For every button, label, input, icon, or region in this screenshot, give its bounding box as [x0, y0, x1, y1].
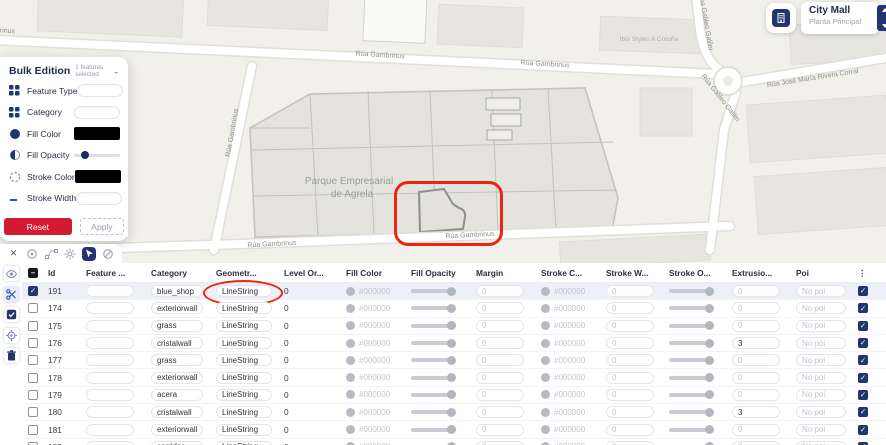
venue-title: City Mall: [809, 5, 871, 17]
row-checkbox[interactable]: [28, 390, 38, 400]
cell-input[interactable]: LineString: [216, 441, 272, 445]
cell-input[interactable]: [86, 389, 134, 401]
opacity-slider[interactable]: [411, 341, 455, 345]
cell-input[interactable]: 0: [476, 424, 524, 436]
slider-knob[interactable]: [705, 304, 714, 313]
cell-input[interactable]: 0: [732, 441, 780, 445]
level-order-value: 0: [284, 286, 289, 296]
slash-tool-icon[interactable]: [101, 247, 115, 261]
opacity-slider[interactable]: [411, 393, 455, 397]
slider-knob[interactable]: [447, 373, 456, 382]
cell-input[interactable]: 0: [476, 406, 524, 418]
cell-input[interactable]: [86, 354, 134, 366]
opacity-slider[interactable]: [669, 393, 713, 397]
table-toolbar: ✕: [0, 244, 122, 263]
row-checkbox[interactable]: ✓: [858, 303, 868, 313]
color-dot-icon[interactable]: [346, 373, 355, 382]
level-order-value: 0: [284, 390, 289, 400]
row-id: 176: [48, 338, 62, 348]
opacity-slider[interactable]: [411, 428, 455, 432]
settings-icon[interactable]: [63, 247, 77, 261]
color-hex-value: #000000: [554, 304, 585, 313]
color-dot-icon[interactable]: [346, 287, 355, 296]
panel-field-stroke-opacity: Stroke Opacity: [0, 209, 128, 213]
panel-field-label: Stroke Color: [27, 172, 75, 182]
cell-input[interactable]: No poi: [796, 372, 846, 384]
color-hex-value: #000000: [554, 373, 585, 382]
line-icon: [8, 192, 21, 205]
building-icon: [772, 9, 790, 27]
filled-circle-icon: [8, 127, 21, 140]
app-window: Rúa GambrinusRúa GambrinusRúa GambrinusR…: [0, 0, 886, 445]
row-checkbox[interactable]: [28, 407, 38, 417]
level-order-value: 0: [284, 373, 289, 383]
color-hex-value: #000000: [554, 408, 585, 417]
cell-input[interactable]: No poi: [796, 424, 846, 436]
cell-input[interactable]: [86, 337, 134, 349]
grid-icon: [8, 84, 21, 97]
row-id: 179: [48, 390, 62, 400]
slider-knob[interactable]: [705, 390, 714, 399]
table-row[interactable]: 179aceraLineString0#0000000#00000000No p…: [22, 387, 886, 404]
cell-input[interactable]: 0: [732, 389, 780, 401]
table-side-rail: [0, 263, 22, 445]
color-hex-value: #000000: [554, 356, 585, 365]
row-id: 174: [48, 303, 62, 313]
opacity-slider[interactable]: [411, 376, 455, 380]
row-checkbox[interactable]: [28, 321, 38, 331]
select-all-checkbox[interactable]: –: [28, 268, 38, 278]
table-row[interactable]: ✓191blue_shopLineString0#0000000#0000000…: [22, 283, 886, 300]
cell-input[interactable]: No poi: [796, 337, 846, 349]
cell-input[interactable]: 0: [476, 389, 524, 401]
cell-input[interactable]: 0: [732, 285, 780, 297]
cell-input[interactable]: 0: [606, 406, 654, 418]
level-order-value: 0: [284, 338, 289, 348]
cell-input[interactable]: corridor: [151, 441, 203, 445]
chevron-up-icon: [882, 8, 886, 12]
row-id: 175: [48, 321, 62, 331]
color-hex-value: #000000: [359, 304, 390, 313]
cell-input[interactable]: cristalwall: [151, 337, 203, 349]
color-dot-icon[interactable]: [346, 339, 355, 348]
row-checkbox[interactable]: [28, 338, 38, 348]
row-checkbox[interactable]: [28, 355, 38, 365]
slider-knob[interactable]: [447, 390, 456, 399]
color-hex-value: #000000: [359, 425, 390, 434]
table-row[interactable]: 178exteriorwallLineString0#0000000#00000…: [22, 369, 886, 386]
cell-input[interactable]: 0: [476, 354, 524, 366]
table-row[interactable]: 175grassLineString0#0000000#00000000No p…: [22, 318, 886, 335]
cell-input[interactable]: 0: [476, 320, 524, 332]
color-dot-icon[interactable]: [346, 356, 355, 365]
table-row[interactable]: 174exteriorwallLineString0#0000000#00000…: [22, 300, 886, 317]
cell-input[interactable]: grass: [151, 320, 203, 332]
row-checkbox[interactable]: [28, 373, 38, 383]
target-tool-icon[interactable]: [25, 247, 39, 261]
slider-knob[interactable]: [705, 321, 714, 330]
row-checkbox[interactable]: ✓: [28, 286, 38, 296]
color-hex-value: #000000: [359, 339, 390, 348]
table-row[interactable]: 181exteriorwallLineString0#0000000#00000…: [22, 421, 886, 438]
color-dot-icon[interactable]: [346, 425, 355, 434]
cell-input[interactable]: LineString: [216, 424, 272, 436]
cell-input[interactable]: 3: [732, 337, 780, 349]
table-row[interactable]: 177grassLineString0#0000000#00000000No p…: [22, 352, 886, 369]
color-dot-icon[interactable]: [541, 287, 550, 296]
cell-input[interactable]: 0: [606, 337, 654, 349]
panel-field-label: Fill Opacity: [27, 150, 74, 160]
bulk-edition-panel: Bulk Edition 1 features selected ⌄ Featu…: [0, 57, 128, 241]
color-hex-value: #000000: [359, 356, 390, 365]
color-dot-icon[interactable]: [541, 321, 550, 330]
slider-knob[interactable]: [705, 408, 714, 417]
cell-input[interactable]: 0: [732, 302, 780, 314]
slider-knob[interactable]: [447, 304, 456, 313]
dashed-circle-icon: [8, 170, 21, 183]
cell-input[interactable]: No poi: [796, 406, 846, 418]
color-hex-value: #000000: [359, 321, 390, 330]
column-header-fill_opacity[interactable]: Fill Opacity: [405, 263, 470, 282]
cell-input[interactable]: LineString: [216, 372, 272, 384]
panel-input[interactable]: [76, 192, 122, 205]
cell-input[interactable]: No poi: [796, 320, 846, 332]
cell-input[interactable]: 0: [606, 441, 654, 445]
map-label: de Agrela: [331, 189, 374, 200]
slider-knob[interactable]: [705, 339, 714, 348]
column-header-menu[interactable]: ⋮: [852, 263, 886, 282]
cell-input[interactable]: LineString: [216, 320, 272, 332]
opacity-slider[interactable]: [669, 358, 713, 362]
slider-knob[interactable]: [705, 287, 714, 296]
level-order-value: 0: [284, 321, 289, 331]
color-hex-value: #000000: [554, 287, 585, 296]
row-id: 178: [48, 373, 62, 383]
slider-knob[interactable]: [705, 356, 714, 365]
half-circle-icon: [8, 149, 21, 162]
cell-input[interactable]: 0: [606, 302, 654, 314]
map-label: Ibis Styles A Coruña: [620, 36, 679, 43]
cell-input[interactable]: [86, 406, 134, 418]
color-dot-icon[interactable]: [541, 425, 550, 434]
cell-input[interactable]: No poi: [796, 285, 846, 297]
cell-input[interactable]: acera: [151, 389, 203, 401]
row-id: 181: [48, 425, 62, 435]
column-header-id[interactable]: Id: [42, 263, 80, 282]
panel-field-label: Feature Type: [27, 86, 77, 96]
column-header-stroke_opacity[interactable]: Stroke O...: [663, 263, 726, 282]
cell-input[interactable]: LineString: [216, 354, 272, 366]
multiselect-icon[interactable]: [4, 307, 19, 322]
opacity-slider[interactable]: [669, 306, 713, 310]
cell-input[interactable]: cristalwall: [151, 406, 203, 418]
opacity-slider[interactable]: [669, 376, 713, 380]
panel-field-label: Fill Color: [27, 129, 74, 139]
level-order-value: 0: [284, 407, 289, 417]
color-dot-icon[interactable]: [346, 390, 355, 399]
cell-input[interactable]: No poi: [796, 354, 846, 366]
cell-input[interactable]: [86, 285, 134, 297]
panel-field-feature-type: Feature Type: [0, 80, 128, 102]
cell-input[interactable]: [86, 372, 134, 384]
panel-field-fill-color: Fill Color: [0, 123, 128, 145]
column-header-poi[interactable]: Poi: [790, 263, 852, 282]
opacity-slider[interactable]: [669, 289, 713, 293]
opacity-slider[interactable]: [411, 358, 455, 362]
row-id: 191: [48, 286, 62, 296]
cell-input[interactable]: 0: [606, 320, 654, 332]
column-header-margin[interactable]: Margin: [470, 263, 535, 282]
table-row[interactable]: 182corridorLineString0#0000000#00000000N…: [22, 439, 886, 445]
select-tool-icon[interactable]: [82, 247, 96, 261]
row-id: 180: [48, 407, 62, 417]
color-hex-value: #000000: [554, 321, 585, 330]
color-dot-icon[interactable]: [541, 356, 550, 365]
cell-input[interactable]: 0: [476, 337, 524, 349]
color-hex-value: #000000: [554, 339, 585, 348]
cell-input[interactable]: [86, 424, 134, 436]
row-checkbox[interactable]: ✓: [858, 338, 868, 348]
cell-input[interactable]: [86, 441, 134, 445]
panel-input[interactable]: [74, 106, 120, 119]
cell-input[interactable]: 0: [606, 372, 654, 384]
cell-input[interactable]: 0: [476, 302, 524, 314]
color-hex-value: #000000: [554, 390, 585, 399]
column-header-stroke_color[interactable]: Stroke C...: [535, 263, 600, 282]
panel-title: Bulk Edition: [9, 65, 70, 77]
color-hex-value: #000000: [554, 425, 585, 434]
venue-icon-card[interactable]: [766, 3, 796, 33]
venue-card[interactable]: City Mall Planta Principal: [801, 2, 879, 34]
cell-input[interactable]: 0: [606, 354, 654, 366]
level-order-value: 0: [284, 303, 289, 313]
color-dot-icon[interactable]: [541, 304, 550, 313]
row-checkbox[interactable]: ✓: [858, 321, 868, 331]
column-header-extrusion[interactable]: Extrusio...: [726, 263, 790, 282]
slider-knob[interactable]: [447, 408, 456, 417]
level-selector-button[interactable]: [877, 5, 886, 31]
color-dot-icon[interactable]: [541, 339, 550, 348]
panel-field-label: Category: [27, 107, 74, 117]
cell-input[interactable]: 0: [476, 285, 524, 297]
delete-icon[interactable]: [4, 348, 19, 363]
row-checkbox[interactable]: ✓: [858, 373, 868, 383]
row-checkbox[interactable]: ✓: [858, 425, 868, 435]
cell-input[interactable]: [86, 320, 134, 332]
opacity-slider[interactable]: [669, 410, 713, 414]
color-dot-icon[interactable]: [346, 304, 355, 313]
panel-field-fill-opacity: Fill Opacity: [0, 145, 128, 167]
apply-button[interactable]: Apply: [80, 218, 124, 235]
slider-knob[interactable]: [447, 356, 456, 365]
annotation-map-highlight: [394, 181, 503, 246]
slider-knob[interactable]: [705, 373, 714, 382]
column-header-feature[interactable]: Feature ...: [80, 263, 145, 282]
close-icon[interactable]: ✕: [7, 247, 20, 261]
cell-input[interactable]: exteriorwall: [151, 372, 203, 384]
table-row[interactable]: 180cristalwallLineString0#0000000#000000…: [22, 404, 886, 421]
cell-input[interactable]: No poi: [796, 441, 846, 445]
color-swatch[interactable]: [75, 170, 121, 183]
color-dot-icon[interactable]: [541, 408, 550, 417]
row-checkbox[interactable]: ✓: [858, 355, 868, 365]
cell-input[interactable]: 0: [732, 372, 780, 384]
color-dot-icon[interactable]: [541, 390, 550, 399]
cell-input[interactable]: grass: [151, 354, 203, 366]
cell-input[interactable]: 0: [606, 389, 654, 401]
table-row[interactable]: 176cristalwallLineString0#0000000#000000…: [22, 335, 886, 352]
panel-field-stroke-width: Stroke Width: [0, 188, 128, 210]
opacity-slider[interactable]: [411, 306, 455, 310]
opacity-slider[interactable]: [411, 410, 455, 414]
cell-input[interactable]: LineString: [216, 285, 272, 297]
color-dot-icon[interactable]: [541, 373, 550, 382]
cell-input[interactable]: 0: [606, 285, 654, 297]
map-label: Parque Empresarial: [305, 176, 393, 187]
column-header-stroke_width[interactable]: Stroke W...: [600, 263, 663, 282]
row-id: 177: [48, 355, 62, 365]
slider-knob[interactable]: [447, 425, 456, 434]
cell-input[interactable]: exteriorwall: [151, 424, 203, 436]
reset-button[interactable]: Reset: [4, 218, 72, 235]
opacity-slider[interactable]: [411, 289, 455, 293]
opacity-slider[interactable]: [669, 341, 713, 345]
row-checkbox[interactable]: [28, 425, 38, 435]
color-dot-icon[interactable]: [346, 321, 355, 330]
slider-knob[interactable]: [447, 339, 456, 348]
cell-input[interactable]: LineString: [216, 389, 272, 401]
color-swatch[interactable]: [74, 127, 120, 140]
visibility-icon[interactable]: [4, 266, 19, 281]
cell-input[interactable]: LineString: [216, 337, 272, 349]
column-header-geometry[interactable]: Geometr...: [210, 263, 278, 282]
opacity-slider[interactable]: [411, 324, 455, 328]
row-checkbox[interactable]: [28, 303, 38, 313]
column-header-category[interactable]: Category: [145, 263, 210, 282]
cell-input[interactable]: exteriorwall: [151, 302, 203, 314]
cell-input[interactable]: 0: [476, 441, 524, 445]
row-checkbox[interactable]: ✓: [858, 286, 868, 296]
opacity-slider[interactable]: [669, 324, 713, 328]
color-dot-icon[interactable]: [346, 408, 355, 417]
panel-field-label: Stroke Width: [27, 193, 76, 203]
cell-input[interactable]: 0: [476, 372, 524, 384]
panel-input[interactable]: [77, 84, 123, 97]
cell-input[interactable]: 0: [732, 354, 780, 366]
cell-input[interactable]: 0: [732, 424, 780, 436]
slider-knob[interactable]: [447, 321, 456, 330]
features-table: –IdFeature ...CategoryGeometr...Level Or…: [22, 263, 886, 445]
cell-input[interactable]: blue_shop: [151, 285, 203, 297]
cell-input[interactable]: LineString: [216, 406, 272, 418]
locate-icon[interactable]: [4, 328, 19, 343]
venue-floor-label: Planta Principal: [809, 17, 871, 27]
cell-input[interactable]: LineString: [216, 302, 272, 314]
cell-input[interactable]: [86, 302, 134, 314]
cell-input[interactable]: 3: [732, 406, 780, 418]
panel-field-stroke-color: Stroke Color: [0, 166, 128, 188]
cell-input[interactable]: 0: [606, 424, 654, 436]
cell-input[interactable]: No poi: [796, 389, 846, 401]
table-header-row: –IdFeature ...CategoryGeometr...Level Or…: [22, 263, 886, 283]
row-checkbox[interactable]: ✓: [858, 407, 868, 417]
level-order-value: 0: [284, 425, 289, 435]
cell-input[interactable]: No poi: [796, 302, 846, 314]
column-header-fill_color[interactable]: Fill Color: [340, 263, 405, 282]
grid-icon: [8, 106, 21, 119]
selection-count: 1 features selected: [75, 64, 112, 78]
color-hex-value: #000000: [359, 287, 390, 296]
color-hex-value: #000000: [359, 390, 390, 399]
color-hex-value: #000000: [359, 373, 390, 382]
column-header-level_order[interactable]: Level Or...: [278, 263, 340, 282]
chevron-down-icon: [882, 24, 886, 28]
slider-knob[interactable]: [447, 287, 456, 296]
row-checkbox[interactable]: ✓: [858, 390, 868, 400]
color-hex-value: #000000: [359, 408, 390, 417]
opacity-slider[interactable]: [74, 154, 120, 157]
slider-knob[interactable]: [81, 151, 89, 159]
slider-knob[interactable]: [705, 425, 714, 434]
cell-input[interactable]: 0: [732, 320, 780, 332]
collapse-chevron-icon[interactable]: ⌄: [112, 67, 120, 76]
level-order-value: 0: [284, 355, 289, 365]
cut-icon[interactable]: [4, 287, 19, 302]
route-tool-icon[interactable]: [44, 247, 58, 261]
panel-field-category: Category: [0, 102, 128, 124]
opacity-slider[interactable]: [669, 428, 713, 432]
